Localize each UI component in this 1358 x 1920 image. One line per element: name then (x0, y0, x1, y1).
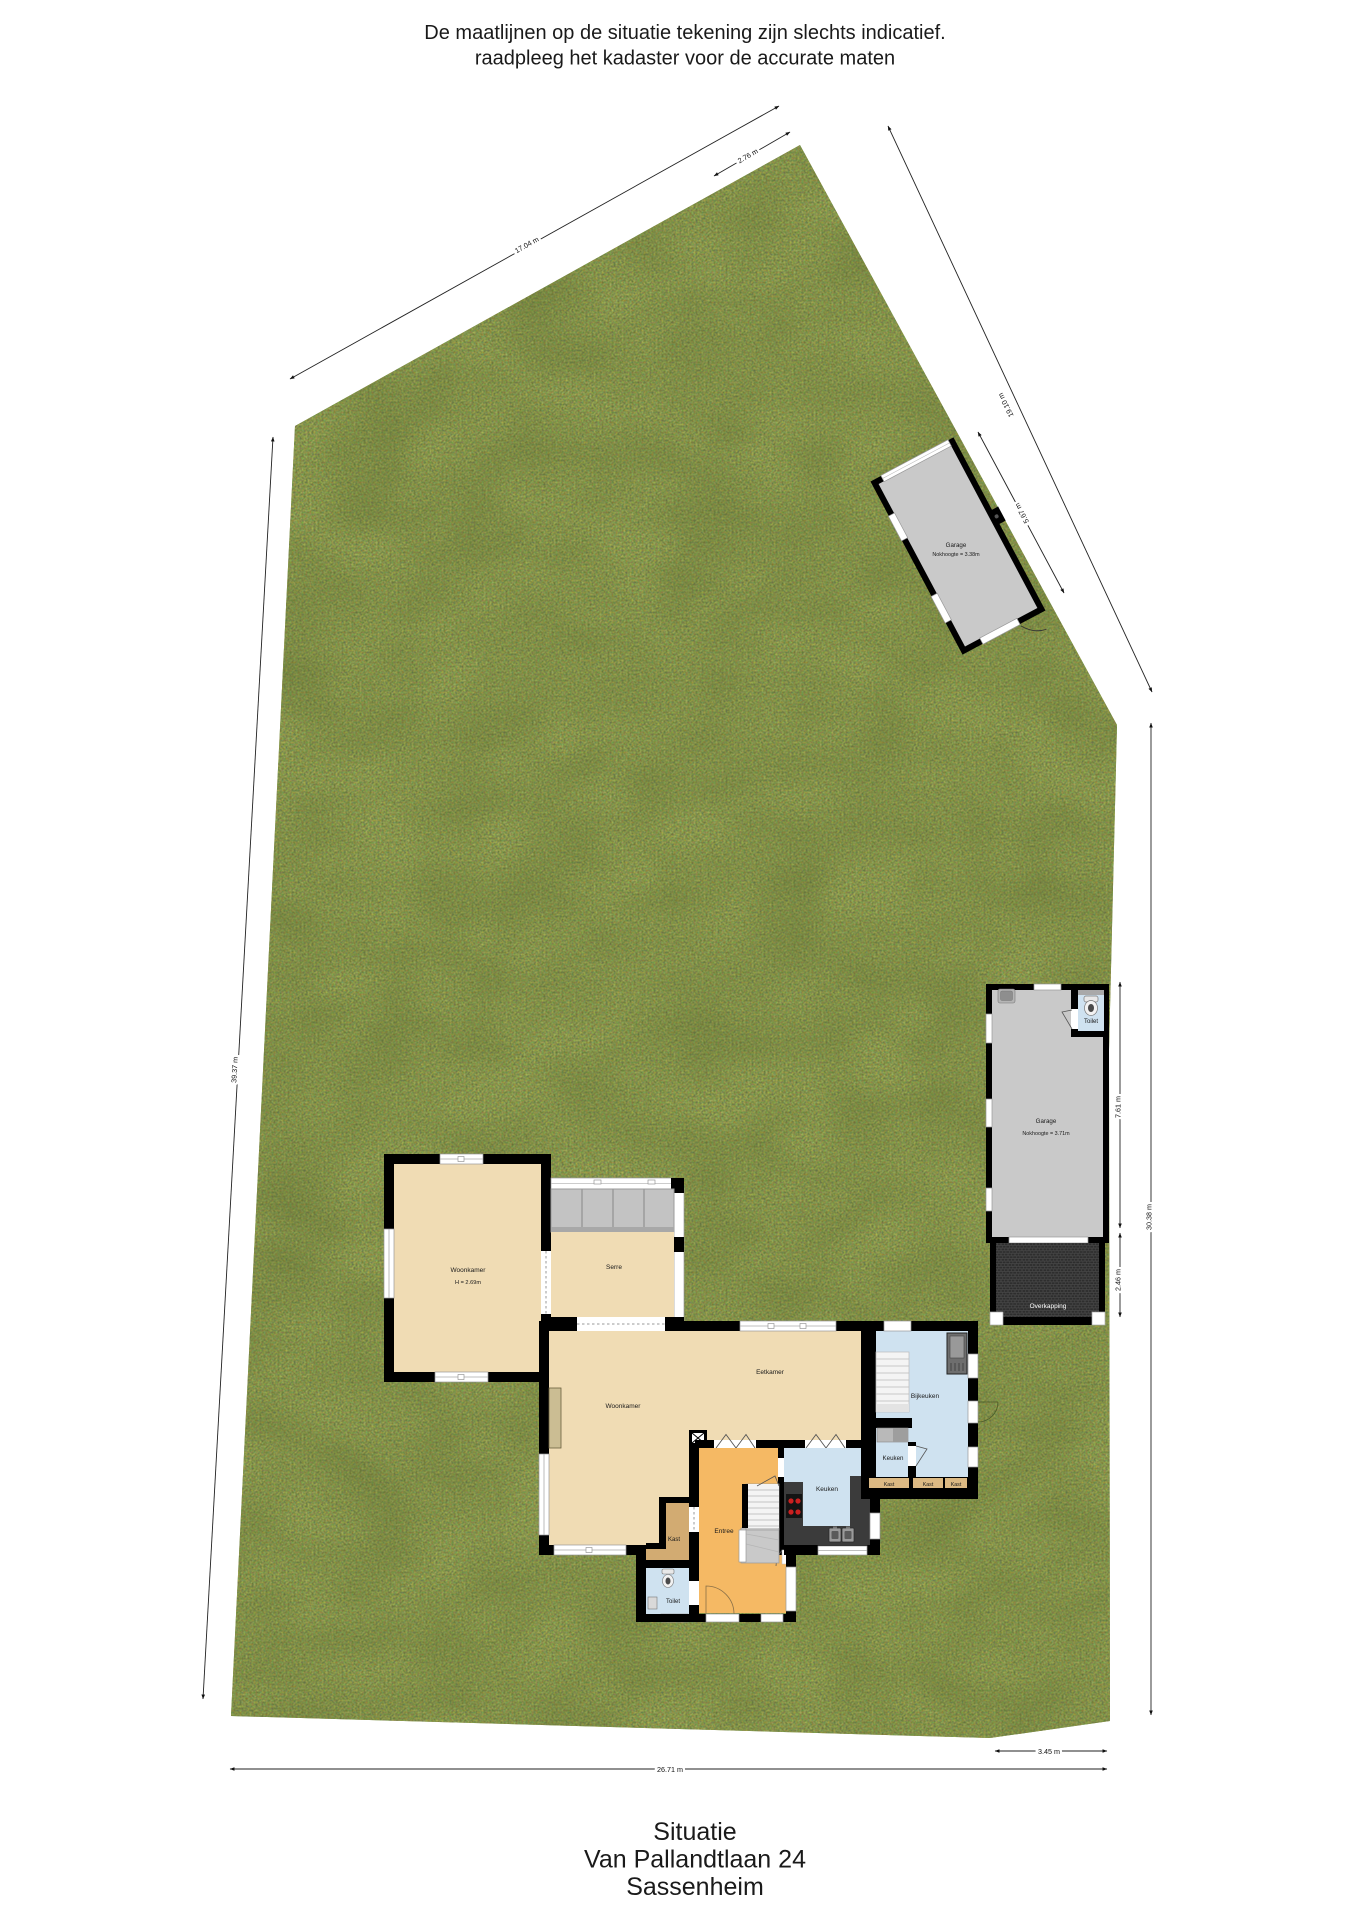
svg-text:Kast: Kast (668, 1537, 680, 1543)
svg-text:3.45 m: 3.45 m (1038, 1747, 1060, 1756)
svg-text:26.71 m: 26.71 m (657, 1765, 683, 1774)
svg-text:Woonkamer: Woonkamer (451, 1267, 487, 1274)
svg-text:39.37 m: 39.37 m (229, 1057, 239, 1083)
svg-text:Kast: Kast (923, 1482, 934, 1488)
svg-text:Nokhoogte = 3.38m: Nokhoogte = 3.38m (932, 552, 980, 558)
svg-text:Garage: Garage (946, 542, 967, 549)
svg-text:Entree: Entree (714, 1528, 734, 1535)
svg-text:Nokhoogte = 3.71m: Nokhoogte = 3.71m (1022, 1131, 1070, 1137)
svg-text:Toilet: Toilet (1084, 1019, 1098, 1025)
svg-text:Situatie: Situatie (653, 1818, 736, 1846)
svg-text:H = 2.69m: H = 2.69m (455, 1280, 481, 1286)
svg-text:De maatlijnen op de situatie t: De maatlijnen op de situatie tekening zi… (424, 22, 945, 44)
svg-text:Bijkeuken: Bijkeuken (911, 1393, 940, 1400)
svg-text:Kast: Kast (951, 1482, 962, 1488)
svg-text:Sassenheim: Sassenheim (626, 1873, 764, 1901)
svg-text:raadpleeg het kadaster voor de: raadpleeg het kadaster voor de accurate … (475, 48, 895, 70)
svg-text:Keuken: Keuken (816, 1486, 838, 1493)
svg-text:Keuken: Keuken (883, 1455, 905, 1462)
svg-text:Kast: Kast (884, 1482, 895, 1488)
svg-text:30.38 m: 30.38 m (1145, 1204, 1154, 1230)
svg-text:Garage: Garage (1036, 1118, 1057, 1125)
svg-text:2.46 m: 2.46 m (1114, 1269, 1123, 1291)
svg-text:7.61 m: 7.61 m (1114, 1096, 1123, 1118)
svg-text:Eetkamer: Eetkamer (756, 1369, 785, 1376)
svg-text:Serre: Serre (606, 1264, 622, 1271)
svg-text:Woonkamer: Woonkamer (606, 1403, 642, 1410)
svg-text:Toilet: Toilet (666, 1599, 680, 1605)
svg-text:Van Pallandtlaan 24: Van Pallandtlaan 24 (584, 1846, 806, 1874)
svg-text:Overkapping: Overkapping (1030, 1303, 1067, 1310)
